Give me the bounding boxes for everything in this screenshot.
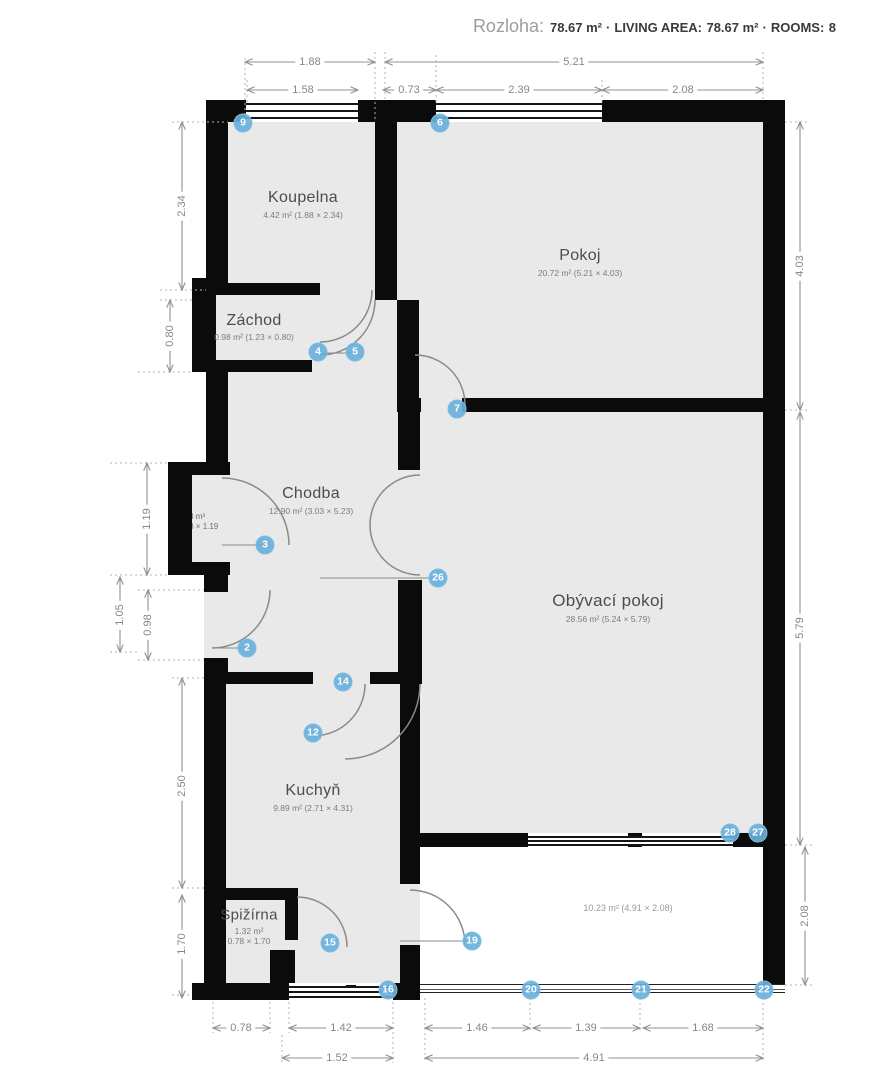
dim-label: 1.58 [288, 84, 317, 96]
marker-4[interactable]: 4 [309, 343, 328, 362]
room-details-zachod: 0.98 m² (1.23 × 0.80) [214, 332, 294, 342]
dim-label: 5.21 [559, 56, 588, 68]
room-details-koupelna: 4.42 m² (1.88 × 2.34) [263, 210, 343, 220]
marker-27[interactable]: 27 [749, 824, 768, 843]
area-title: Rozloha: [473, 16, 544, 36]
marker-2[interactable]: 2 [238, 639, 257, 658]
area-value: 78.67 m² [550, 20, 602, 35]
marker-20[interactable]: 20 [522, 981, 541, 1000]
wall [398, 580, 422, 684]
living-area-value: 78.67 m² [706, 20, 758, 35]
wall [204, 684, 226, 1000]
room-label-chodba: Chodba [282, 485, 340, 503]
marker-3[interactable]: 3 [256, 536, 275, 555]
room-label-kuchyn: Kuchyň [285, 782, 340, 800]
room-label-pokoj: Pokoj [559, 247, 601, 265]
dim-label: 0.78 [226, 1022, 255, 1034]
room-details-balkon: 10.23 m² (4.91 × 2.08) [583, 903, 672, 913]
window-kuchyn [289, 986, 393, 998]
dim-label: 1.52 [322, 1052, 351, 1064]
wall [206, 672, 313, 684]
wall [400, 684, 420, 884]
dim-label: 0.73 [394, 84, 423, 96]
dim-label: 0.98 [142, 610, 154, 639]
room-details2-spizirna: 0.78 × 1.70 [228, 936, 271, 946]
wall [462, 398, 763, 412]
dim-label: 2.08 [668, 84, 697, 96]
marker-22[interactable]: 22 [755, 981, 774, 1000]
marker-15[interactable]: 15 [321, 934, 340, 953]
marker-26[interactable]: 26 [429, 569, 448, 588]
wall [397, 300, 419, 322]
wall [285, 888, 298, 940]
marker-7[interactable]: 7 [448, 400, 467, 419]
dim-label: 5.79 [794, 613, 806, 642]
wall [206, 100, 228, 290]
dim-label: 4.91 [579, 1052, 608, 1064]
dim-label: 1.42 [326, 1022, 355, 1034]
entry-door-gap [204, 590, 228, 660]
wall [270, 950, 295, 983]
separator: · [606, 20, 610, 35]
balcony-railing [420, 984, 785, 993]
wall [206, 888, 297, 900]
wall [168, 562, 230, 575]
dim-label: 1.05 [114, 600, 126, 629]
wall [204, 575, 228, 592]
plan-summary: Rozloha:78.67 m²·LIVING AREA: 78.67 m²·R… [473, 16, 836, 37]
room-details-spizirna: 1.32 m² [235, 926, 264, 936]
room-details-obyvaci-pokoj: 28.56 m² (5.24 × 5.79) [566, 614, 650, 624]
wall [370, 672, 422, 684]
wall [168, 462, 192, 575]
dim-label: 1.88 [295, 56, 324, 68]
wall [397, 398, 421, 412]
wall [192, 360, 312, 372]
marker-21[interactable]: 21 [632, 981, 651, 1000]
room-details-kuchyn: 9.89 m² (2.71 × 4.31) [273, 803, 353, 813]
rooms-value: 8 [829, 20, 836, 35]
dim-label: 0.80 [164, 321, 176, 350]
wall [358, 100, 436, 122]
living-area-label: LIVING AREA: [614, 20, 702, 35]
marker-5[interactable]: 5 [346, 343, 365, 362]
dim-label: 2.39 [504, 84, 533, 96]
marker-12[interactable]: 12 [304, 724, 323, 743]
dim-label: 1.39 [571, 1022, 600, 1034]
marker-9[interactable]: 9 [234, 114, 253, 133]
wall [763, 100, 785, 993]
marker-14[interactable]: 14 [334, 673, 353, 692]
room-details-pokoj: 20.72 m² (5.21 × 4.03) [538, 268, 622, 278]
room-label-zachod: Záchod [226, 312, 281, 330]
dim-label: 1.46 [462, 1022, 491, 1034]
wall [192, 283, 320, 295]
wall [420, 833, 528, 847]
wall [602, 100, 785, 122]
marker-6[interactable]: 6 [431, 114, 450, 133]
marker-19[interactable]: 19 [463, 932, 482, 951]
dim-label: 2.50 [176, 771, 188, 800]
wall [397, 322, 419, 398]
dim-label: 1.19 [141, 504, 153, 533]
room-label-obyvaci-pokoj: Obývací pokoj [552, 591, 664, 611]
dim-label: 2.08 [799, 901, 811, 930]
floor-plan: Rozloha:78.67 m²·LIVING AREA: 78.67 m²·R… [0, 0, 890, 1080]
wall [398, 412, 420, 470]
dim-label: 2.34 [176, 191, 188, 220]
dim-label: 1.68 [688, 1022, 717, 1034]
room-label-koupelna: Koupelna [268, 189, 338, 207]
wall [375, 100, 397, 300]
wall [192, 983, 289, 1000]
door-gap-26 [398, 470, 420, 580]
door-gap-19 [400, 884, 420, 945]
window-pokoj [436, 103, 602, 119]
room-details-chodba: 12.90 m² (3.03 × 5.23) [269, 506, 353, 516]
wall [206, 372, 228, 462]
marker-28[interactable]: 28 [721, 824, 740, 843]
separator: · [763, 20, 767, 35]
room-label-spizirna: Spižírna [220, 907, 277, 924]
window-obyvaci-pokoj [528, 836, 733, 846]
room-floor-vestibule [320, 283, 462, 398]
rooms-label: ROOMS: [771, 20, 824, 35]
wall [168, 462, 230, 475]
window-koupelna [246, 103, 358, 119]
dim-label: 4.03 [794, 251, 806, 280]
dim-label: 1.70 [176, 929, 188, 958]
marker-16[interactable]: 16 [379, 981, 398, 1000]
